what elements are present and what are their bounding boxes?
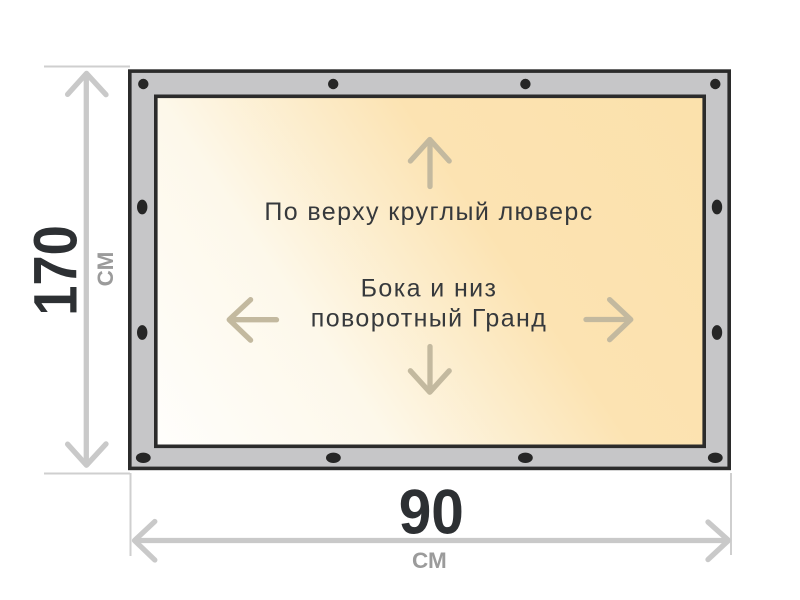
svg-text:СМ: СМ	[93, 252, 118, 287]
svg-text:170: 170	[23, 225, 91, 316]
svg-text:СМ: СМ	[412, 548, 447, 573]
svg-text:По верху круглый люверс: По верху круглый люверс	[264, 198, 593, 226]
svg-text:90: 90	[399, 477, 464, 547]
svg-text:поворотный Гранд: поворотный Гранд	[311, 304, 547, 332]
svg-text:Бока и низ: Бока и низ	[361, 275, 498, 303]
